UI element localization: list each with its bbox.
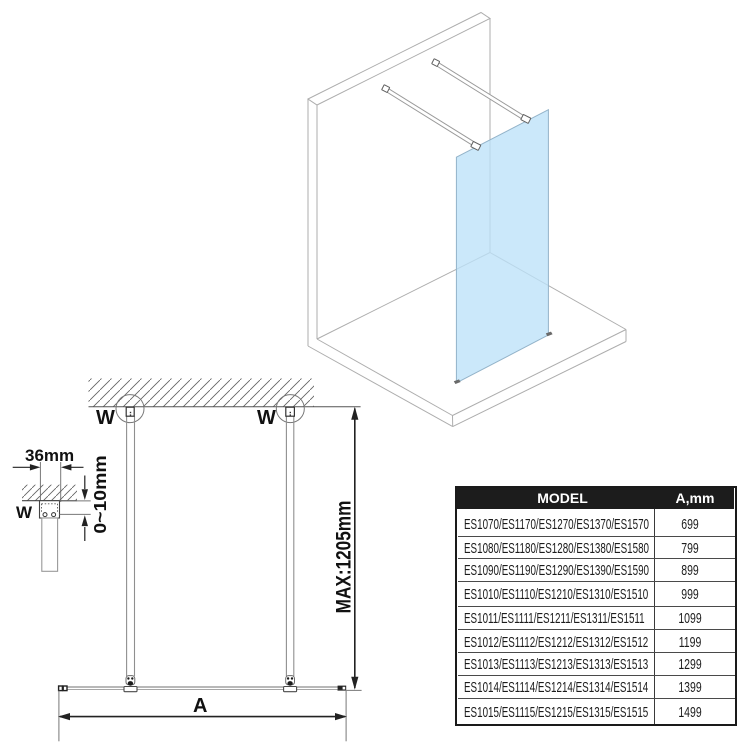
svg-text:0~10mm: 0~10mm — [90, 455, 110, 533]
svg-text:MAX:1205mm: MAX:1205mm — [332, 501, 356, 614]
